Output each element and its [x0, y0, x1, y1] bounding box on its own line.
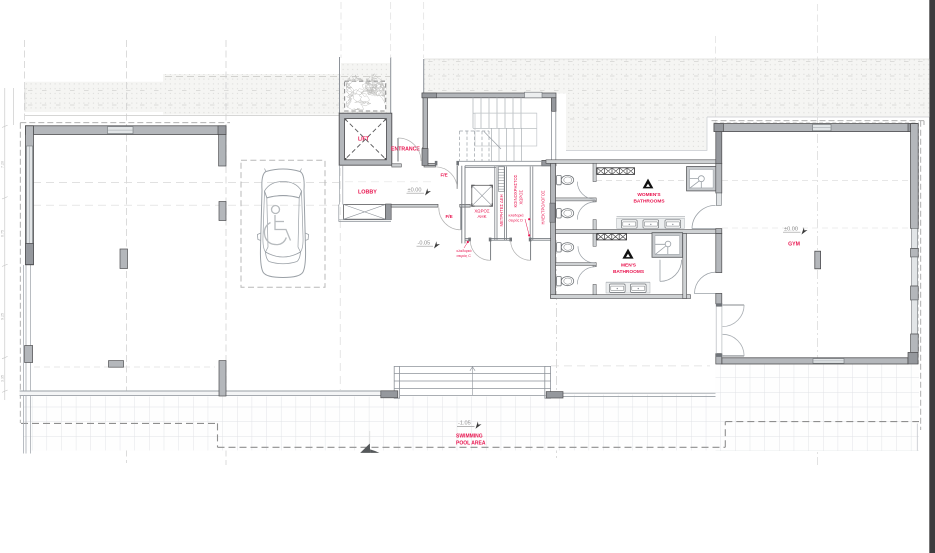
svg-text:LOBBY: LOBBY	[358, 190, 377, 196]
svg-text:κλαδαριά: κλαδαριά	[509, 214, 525, 218]
svg-text:F/E: F/E	[446, 214, 453, 219]
svg-text:7.20: 7.20	[1, 161, 5, 168]
svg-text:ΑΗΚ: ΑΗΚ	[477, 214, 486, 219]
svg-text:ΧΩΡΟΣ: ΧΩΡΟΣ	[519, 190, 524, 205]
svg-text:6.75: 6.75	[1, 230, 5, 237]
svg-text:GYM: GYM	[788, 242, 800, 248]
svg-text:SWIMMING: SWIMMING	[456, 434, 483, 440]
svg-text:±0.00: ±0.00	[408, 188, 422, 194]
svg-text:σειράς D: σειράς D	[509, 218, 524, 222]
svg-text:9.25: 9.25	[1, 313, 5, 320]
svg-text:POOL AREA: POOL AREA	[456, 441, 486, 447]
svg-text:±0.00: ±0.00	[784, 227, 798, 233]
svg-text:-0.05: -0.05	[418, 241, 431, 247]
svg-text:F/E: F/E	[441, 173, 448, 178]
svg-text:ΧΩΡΟΣ: ΧΩΡΟΣ	[474, 209, 490, 214]
svg-text:σειράς C: σειράς C	[457, 254, 472, 258]
svg-text:BATHROOMS: BATHROOMS	[633, 199, 665, 205]
svg-text:ENTRANCE: ENTRANCE	[391, 147, 420, 153]
svg-text:WOMEN'S: WOMEN'S	[637, 192, 661, 198]
svg-text:3.35: 3.35	[1, 375, 5, 382]
svg-text:ΜΕΤΡΗΤΕΣ ΔΕΗ: ΜΕΤΡΗΤΕΣ ΔΕΗ	[499, 194, 504, 226]
svg-text:ΚΟΙΝΟΧΡΗΣΤΟΣ: ΚΟΙΝΟΧΡΗΣΤΟΣ	[513, 174, 518, 207]
svg-text:LIFT: LIFT	[358, 137, 370, 143]
svg-text:MEN'S: MEN'S	[621, 263, 637, 269]
svg-text:BATHROOMS: BATHROOMS	[613, 269, 645, 275]
svg-text:-1.05: -1.05	[458, 421, 471, 427]
svg-text:κλαδαριά: κλαδαριά	[457, 249, 473, 253]
svg-text:ΗΛΕΚΤΡΟΛΟΓΟΣ: ΗΛΕΚΤΡΟΛΟΓΟΣ	[540, 190, 545, 224]
